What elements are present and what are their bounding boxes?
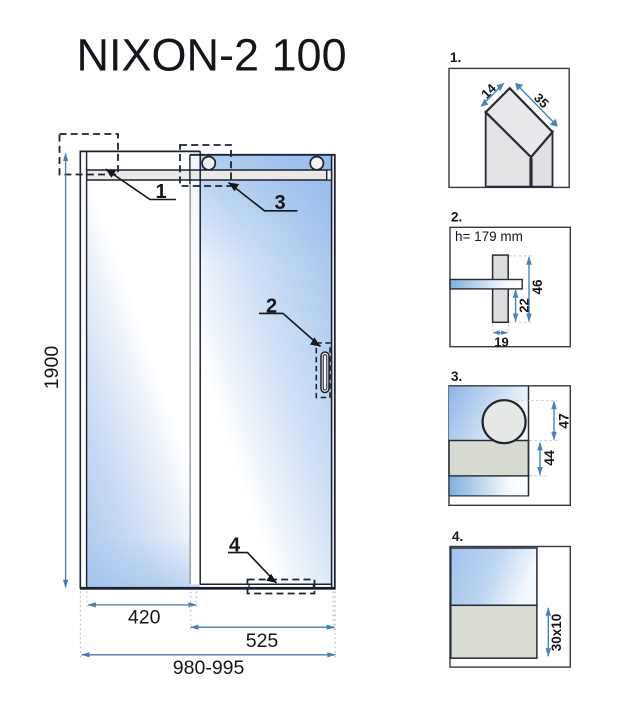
svg-text:47: 47 bbox=[556, 413, 572, 429]
svg-text:2: 2 bbox=[266, 295, 277, 317]
svg-text:420: 420 bbox=[128, 607, 161, 629]
svg-text:1.: 1. bbox=[450, 50, 461, 65]
svg-text:h= 179 mm: h= 179 mm bbox=[455, 229, 523, 244]
svg-text:44: 44 bbox=[541, 450, 557, 466]
svg-text:4.: 4. bbox=[452, 529, 463, 544]
svg-text:3: 3 bbox=[274, 192, 285, 214]
svg-text:30x10: 30x10 bbox=[549, 614, 564, 652]
svg-text:3.: 3. bbox=[451, 369, 462, 384]
svg-text:NIXON-2 100: NIXON-2 100 bbox=[77, 30, 347, 81]
svg-text:46: 46 bbox=[530, 279, 545, 295]
svg-text:1900: 1900 bbox=[41, 346, 63, 390]
svg-text:22: 22 bbox=[516, 298, 531, 312]
svg-text:525: 525 bbox=[246, 630, 279, 652]
svg-text:980-995: 980-995 bbox=[173, 657, 245, 679]
svg-text:4: 4 bbox=[229, 534, 241, 556]
svg-text:2.: 2. bbox=[451, 210, 462, 225]
svg-text:1: 1 bbox=[155, 181, 166, 203]
svg-text:19: 19 bbox=[494, 334, 508, 349]
